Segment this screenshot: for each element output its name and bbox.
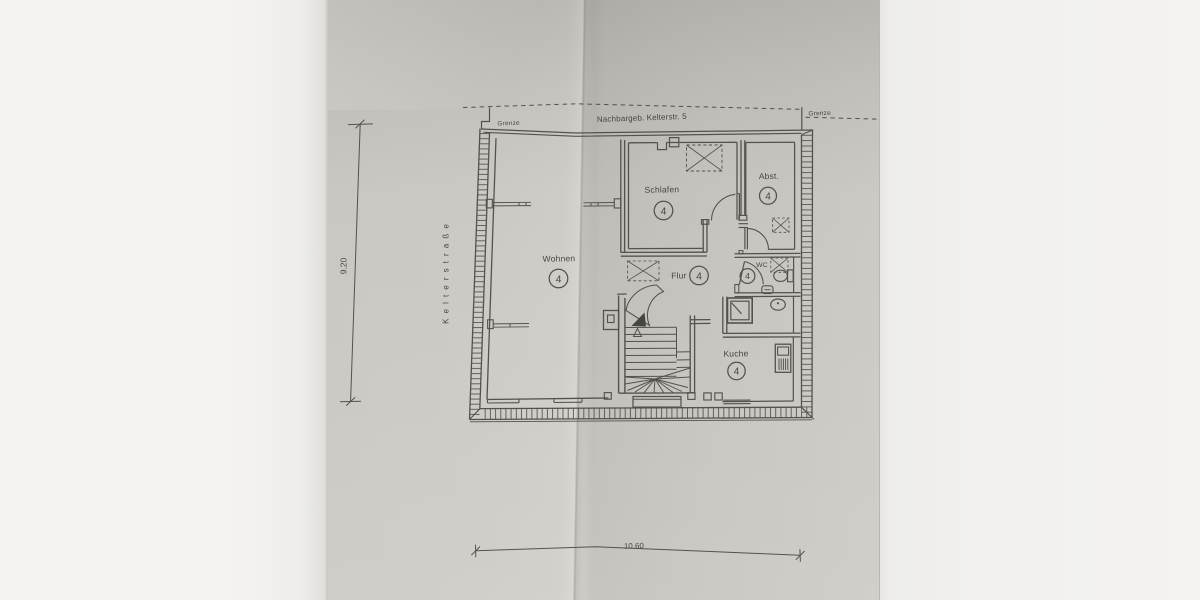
svg-text:Kuche: Kuche — [723, 348, 748, 358]
svg-text:10.60: 10.60 — [624, 541, 645, 551]
svg-text:4: 4 — [745, 271, 750, 281]
svg-text:4: 4 — [765, 191, 771, 202]
svg-text:4: 4 — [734, 367, 740, 378]
svg-text:Wohnen: Wohnen — [543, 253, 576, 264]
svg-text:Abst.: Abst. — [759, 171, 780, 181]
svg-text:9.20: 9.20 — [339, 257, 349, 274]
svg-text:Schlafen: Schlafen — [645, 184, 680, 195]
svg-text:Grenze: Grenze — [497, 120, 520, 128]
svg-text:Nachbargeb. Kelterstr. 5: Nachbargeb. Kelterstr. 5 — [597, 112, 688, 124]
svg-text:WC: WC — [756, 262, 768, 269]
svg-text:Grenze: Grenze — [808, 110, 831, 118]
svg-text:Flur: Flur — [671, 270, 687, 280]
svg-text:4: 4 — [696, 270, 702, 282]
svg-text:Kelterstraße: Kelterstraße — [442, 219, 451, 324]
svg-text:4: 4 — [661, 205, 667, 217]
svg-text:4: 4 — [556, 273, 562, 285]
